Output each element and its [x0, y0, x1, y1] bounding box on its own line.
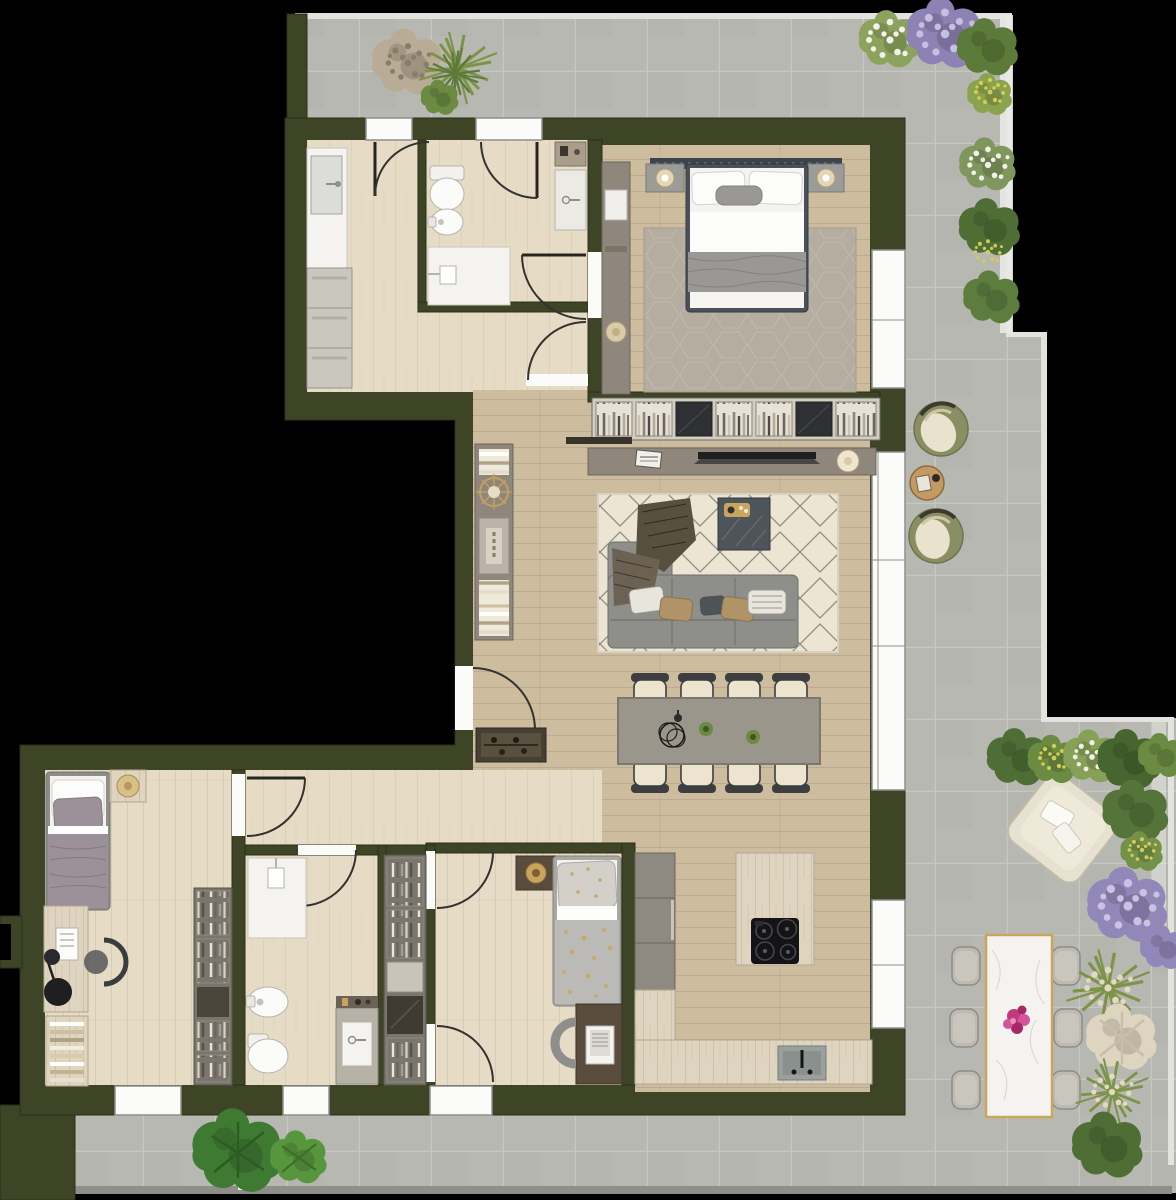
shower — [428, 247, 510, 305]
bookshelf-wall — [592, 398, 880, 440]
tv-sideboard — [588, 448, 876, 475]
window-living — [872, 452, 905, 790]
window-bedroom1 — [872, 250, 905, 388]
toilet — [430, 166, 464, 210]
ladder-bookshelf — [46, 1016, 88, 1086]
wall-notch — [0, 924, 11, 960]
outdoor-chair — [1054, 1009, 1082, 1047]
lumbar-pillow — [716, 186, 762, 205]
doorway-corridor — [526, 374, 588, 386]
coffee-table — [718, 498, 770, 550]
doorway-bedroom2 — [232, 774, 245, 836]
book-stack — [479, 580, 509, 636]
cabinet-handle — [671, 900, 674, 940]
outdoor-dining-set — [950, 935, 1082, 1117]
laundry-room — [307, 148, 352, 388]
vanity-sink — [555, 142, 586, 230]
storage-box — [197, 987, 229, 1017]
window-bottom-3 — [430, 1086, 492, 1115]
floor-plan-canvas — [0, 0, 1176, 1200]
terrace-railing-top — [295, 13, 1010, 19]
double-bed — [686, 164, 808, 312]
terrace-planter-block — [0, 1105, 75, 1200]
outdoor-chair — [952, 1071, 980, 1109]
single-bed — [46, 772, 110, 910]
doorway-bedroom3-bottom — [426, 1024, 435, 1082]
entry-door — [455, 666, 473, 730]
outdoor-chair — [950, 1009, 978, 1047]
doorway-bedroom1 — [588, 252, 602, 318]
dining-table — [618, 698, 820, 764]
desk-lamp — [44, 949, 60, 965]
round-side-table — [910, 466, 944, 500]
kitchen-sink — [778, 1046, 826, 1080]
magazines — [635, 450, 662, 469]
cup — [932, 474, 940, 482]
kitchen-counter — [635, 1040, 872, 1084]
wall-bedroom3-north — [426, 843, 622, 853]
wardrobe — [602, 162, 630, 394]
nightstand-left — [646, 164, 684, 192]
outdoor-chair — [1052, 947, 1080, 985]
nightstand — [516, 856, 556, 890]
kitchen-island — [736, 853, 814, 965]
window-bottom-2 — [283, 1086, 329, 1115]
tv — [698, 452, 816, 459]
living-room — [598, 494, 838, 652]
book-stack — [479, 449, 509, 475]
terrace-wall-column — [287, 14, 307, 120]
shower — [248, 858, 306, 938]
window-top-1 — [366, 118, 412, 140]
floor-hall-2 — [245, 770, 602, 848]
bath-shelf — [555, 142, 586, 166]
terrace-right-mid — [1010, 335, 1045, 720]
terrace-railing-step2 — [1041, 717, 1172, 722]
shoe-cabinet — [476, 728, 546, 762]
washer-dryer-stack — [307, 268, 352, 388]
corridor-console — [475, 444, 513, 640]
pillow — [659, 596, 693, 621]
book — [916, 475, 931, 492]
slim-bench — [566, 437, 632, 444]
terrace-railing-right-mid — [1041, 332, 1047, 722]
wall-bedroom3-east — [622, 843, 635, 1085]
window-kitchen — [872, 900, 905, 1028]
vanity — [336, 996, 378, 1084]
nightstand — [110, 770, 146, 802]
doorway-bedroom3-top — [426, 851, 435, 909]
doorway-bathroom2 — [298, 845, 356, 855]
single-bed-star — [553, 856, 621, 1006]
window-top-2 — [476, 118, 542, 140]
nightstand-right — [808, 164, 844, 192]
wardrobe-column — [194, 888, 232, 1085]
tall-cabinets — [635, 853, 675, 990]
outdoor-chair — [952, 947, 980, 985]
closet-shelf — [387, 962, 423, 992]
wall-bath1-left — [418, 140, 426, 312]
counter-column — [635, 990, 675, 1040]
blanket — [48, 834, 108, 908]
walk-in-closet — [384, 855, 426, 1085]
window-bottom-1 — [115, 1086, 181, 1115]
floor-plan — [0, 0, 1176, 1200]
